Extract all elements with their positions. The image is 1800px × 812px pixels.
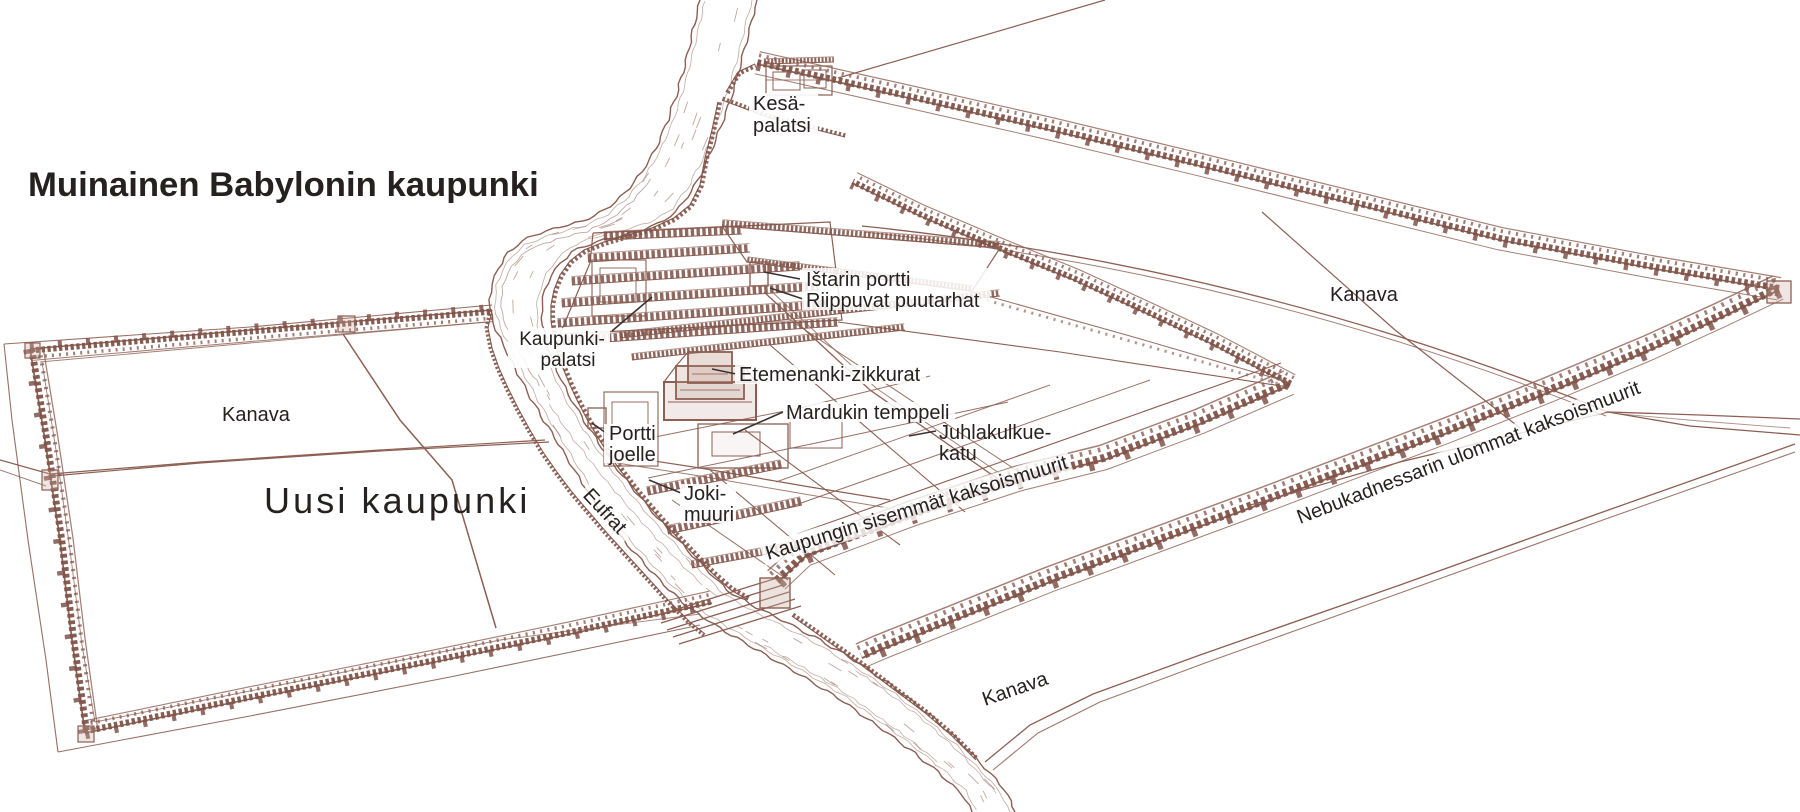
- svg-text:muuri: muuri: [684, 504, 734, 526]
- svg-text:Etemenanki-zikkurat: Etemenanki-zikkurat: [739, 364, 921, 386]
- svg-text:katu: katu: [939, 443, 977, 465]
- svg-text:Kaupunki-: Kaupunki-: [519, 329, 605, 350]
- svg-text:Uusi kaupunki: Uusi kaupunki: [264, 480, 530, 521]
- svg-text:Mardukin temppeli: Mardukin temppeli: [786, 402, 949, 424]
- svg-text:Ištarin portti: Ištarin portti: [806, 269, 910, 291]
- svg-text:Kanava: Kanava: [1330, 284, 1399, 306]
- svg-text:Muinainen Babylonin kaupunki: Muinainen Babylonin kaupunki: [28, 166, 539, 204]
- svg-text:Riippuvat puutarhat: Riippuvat puutarhat: [806, 290, 980, 312]
- svg-text:Kanava: Kanava: [222, 404, 291, 426]
- svg-text:palatsi: palatsi: [753, 115, 811, 137]
- svg-text:Juhlakulkue-: Juhlakulkue-: [939, 422, 1051, 444]
- svg-text:joelle: joelle: [608, 444, 656, 466]
- svg-text:Joki-: Joki-: [684, 483, 726, 505]
- svg-text:palatsi: palatsi: [541, 350, 596, 371]
- svg-text:Portti: Portti: [609, 423, 656, 445]
- svg-text:Kesä-: Kesä-: [753, 93, 805, 115]
